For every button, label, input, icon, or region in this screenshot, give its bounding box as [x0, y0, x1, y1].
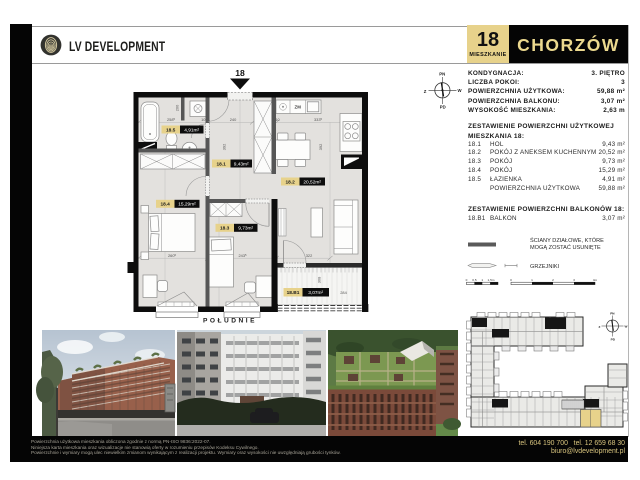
- svg-text:322: 322: [306, 253, 313, 258]
- svg-text:284: 284: [340, 290, 347, 295]
- svg-text:308: 308: [317, 277, 322, 284]
- svg-text:9,73m²: 9,73m²: [238, 226, 253, 232]
- svg-text:W: W: [457, 88, 462, 93]
- svg-text:18: 18: [235, 68, 245, 78]
- svg-text:W: W: [625, 324, 628, 328]
- svg-text:392: 392: [221, 144, 226, 151]
- svg-text:Z: Z: [599, 325, 601, 329]
- svg-text:3: 3: [573, 278, 575, 282]
- svg-text:392: 392: [318, 144, 323, 151]
- svg-text:18.2: 18.2: [286, 179, 296, 185]
- svg-text:2: 2: [552, 278, 554, 282]
- svg-text:0: 0: [510, 278, 512, 282]
- svg-text:ZM: ZM: [295, 105, 302, 110]
- svg-text:3,07m²: 3,07m²: [308, 290, 323, 296]
- svg-text:18.3: 18.3: [220, 226, 230, 232]
- svg-text:POŁUDNIE: POŁUDNIE: [203, 318, 257, 325]
- svg-text:4m: 4m: [593, 278, 598, 282]
- svg-text:18.4: 18.4: [161, 202, 171, 208]
- svg-text:PD: PD: [611, 338, 616, 342]
- svg-text:9,43m²: 9,43m²: [234, 161, 249, 167]
- svg-text:PN: PN: [439, 72, 445, 77]
- svg-text:18.1: 18.1: [217, 161, 227, 167]
- svg-text:1: 1: [531, 278, 533, 282]
- svg-text:4,91m²: 4,91m²: [184, 127, 199, 133]
- svg-text:PD: PD: [440, 105, 446, 110]
- svg-text:20,52m²: 20,52m²: [303, 179, 321, 185]
- svg-text:240: 240: [230, 117, 237, 122]
- svg-text:15,29m²: 15,29m²: [178, 202, 196, 208]
- svg-text:200: 200: [175, 104, 180, 111]
- svg-text:18.5: 18.5: [166, 127, 176, 133]
- svg-text:PN: PN: [610, 312, 615, 316]
- svg-text:0: 0: [466, 278, 468, 282]
- svg-text:1: 1: [481, 278, 483, 282]
- svg-text:1,5m: 1,5m: [488, 278, 495, 282]
- svg-text:Z: Z: [424, 89, 427, 94]
- svg-text:18.B1: 18.B1: [287, 290, 300, 296]
- svg-text:0,5: 0,5: [472, 278, 477, 282]
